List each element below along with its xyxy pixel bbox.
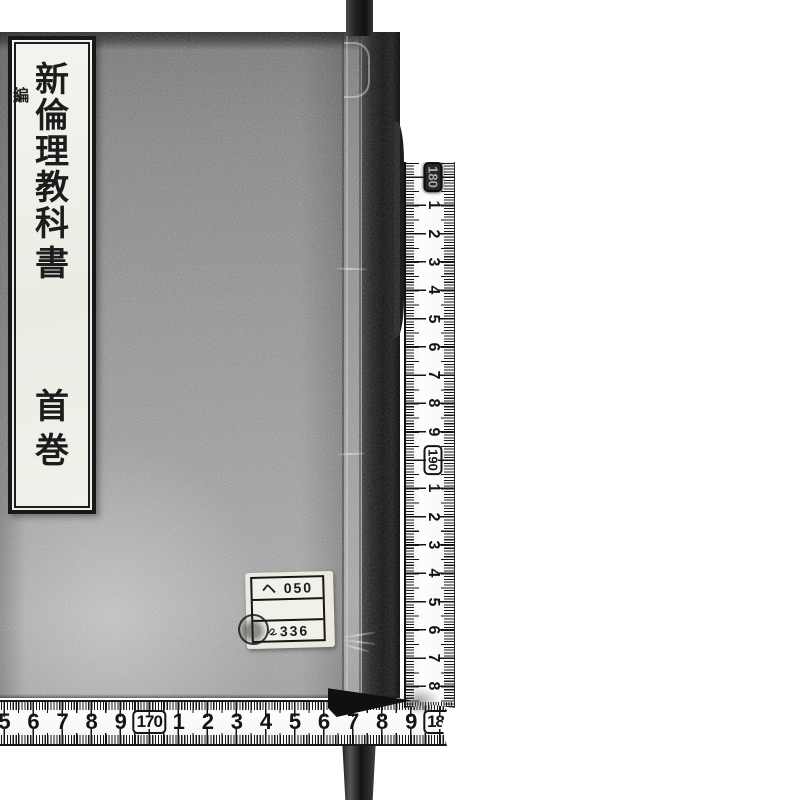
ruler-number: 3 (231, 709, 242, 735)
ruler-number: 5 (424, 597, 442, 606)
cover-crease (359, 32, 361, 698)
ruler-number: 190 (424, 445, 443, 475)
handwritten-mark (268, 626, 278, 636)
ruler-number: 3 (424, 540, 442, 549)
title-char: 教 (12, 171, 92, 205)
ruler-number: 9 (115, 709, 126, 735)
ruler-number: 2 (424, 512, 442, 521)
ruler-number: 4 (424, 569, 442, 578)
title-char: 書 (12, 247, 92, 281)
cover-crease (342, 32, 344, 698)
ruler-number: 6 (424, 342, 442, 351)
title-char: 首 (12, 390, 92, 424)
call-number-top: ヘ 050 (252, 577, 322, 599)
ruler-number: 7 (424, 654, 442, 663)
ruler-number: 7 (56, 709, 67, 735)
binding-cord-bottom (341, 746, 377, 800)
ruler-number: 6 (27, 709, 38, 735)
ruler-number: 6 (318, 709, 329, 735)
spine-edge-bump (394, 122, 404, 337)
ruler-number: 5 (0, 709, 10, 735)
ruler-number: 7 (424, 371, 442, 380)
vertical-ruler: 18012345678919012345678 (404, 162, 455, 708)
ruler-number: 1 (424, 484, 442, 493)
ruler-number: 9 (424, 427, 442, 436)
title-char: 編 (13, 89, 29, 105)
ruler-number: 5 (424, 314, 442, 323)
cover-crease (346, 32, 348, 698)
ruler-number: 1 (424, 201, 442, 210)
title-char: 巻 (12, 434, 92, 468)
ruler-number: 1 (173, 709, 184, 735)
ruler-number: 3 (424, 257, 442, 266)
ruler-number: 8 (376, 709, 387, 735)
binding-cord-top (346, 0, 373, 36)
circular-stamp (238, 614, 269, 645)
title-char: 理 (12, 135, 92, 169)
ruler-number: 4 (260, 709, 271, 735)
ruler-number: 5 (289, 709, 300, 735)
title-char: 科 (12, 207, 92, 241)
scanned-book-photo: 新倫理教科書編首巻 ヘ 050 336 18012345678919012345… (0, 0, 800, 800)
ruler-number: 8 (86, 709, 97, 735)
ruler-number: 2 (202, 709, 213, 735)
ruler-edge (0, 744, 447, 746)
ruler-number: 4 (424, 286, 442, 295)
ruler-number: 8 (424, 399, 442, 408)
ruler-number: 170 (133, 710, 166, 734)
ruler-number: 6 (424, 625, 442, 634)
ruler-edge (454, 162, 456, 708)
ruler-number: 180 (424, 162, 443, 192)
ruler-number: 2 (424, 229, 442, 238)
title-label: 新倫理教科書編首巻 (8, 36, 96, 514)
